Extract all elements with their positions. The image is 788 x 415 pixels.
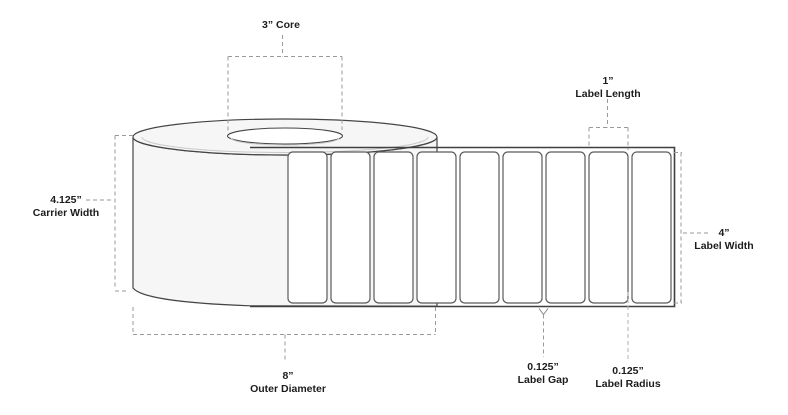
core-hole-ellipse (228, 128, 343, 144)
label-length-dimension-lines (589, 99, 628, 150)
label-rect (460, 152, 499, 303)
label-strip-labels (288, 152, 671, 303)
label-rect (546, 152, 585, 303)
label-rect (288, 152, 327, 303)
label-width-name: Label Width (694, 240, 753, 253)
label-length-value: 1” (575, 75, 640, 88)
label-roll-diagram: 3” Core 4.125” Carrier Width 1” Label Le… (0, 0, 788, 415)
core-dimension-label: 3” Core (262, 19, 300, 32)
label-length-dimension-label: 1” Label Length (575, 75, 640, 100)
label-rect (331, 152, 370, 303)
label-gap-value: 0.125” (518, 361, 569, 374)
label-gap-dimension-label: 0.125” Label Gap (518, 361, 569, 386)
label-radius-name: Label Radius (595, 378, 660, 391)
diagram-drawing (0, 0, 788, 415)
label-rect (589, 152, 628, 303)
label-radius-dimension-label: 0.125” Label Radius (595, 365, 660, 390)
label-length-name: Label Length (575, 88, 640, 101)
carrier-width-dimension-label: 4.125” Carrier Width (33, 194, 99, 219)
outer-diameter-value: 8” (250, 370, 326, 383)
label-width-dimension-label: 4” Label Width (694, 227, 753, 252)
carrier-width-value: 4.125” (33, 194, 99, 207)
label-radius-value: 0.125” (595, 365, 660, 378)
label-rect (417, 152, 456, 303)
core-dimension-lines (228, 35, 342, 133)
label-width-value: 4” (694, 227, 753, 240)
outer-diameter-dimension-lines (133, 307, 436, 361)
label-rect (374, 152, 413, 303)
label-gap-dimension-lines (539, 309, 548, 358)
label-gap-name: Label Gap (518, 374, 569, 387)
label-rect (632, 152, 671, 303)
label-rect (503, 152, 542, 303)
outer-diameter-name: Outer Diameter (250, 383, 326, 396)
carrier-width-name: Carrier Width (33, 207, 99, 220)
core-value: 3” Core (262, 19, 300, 32)
outer-diameter-dimension-label: 8” Outer Diameter (250, 370, 326, 395)
